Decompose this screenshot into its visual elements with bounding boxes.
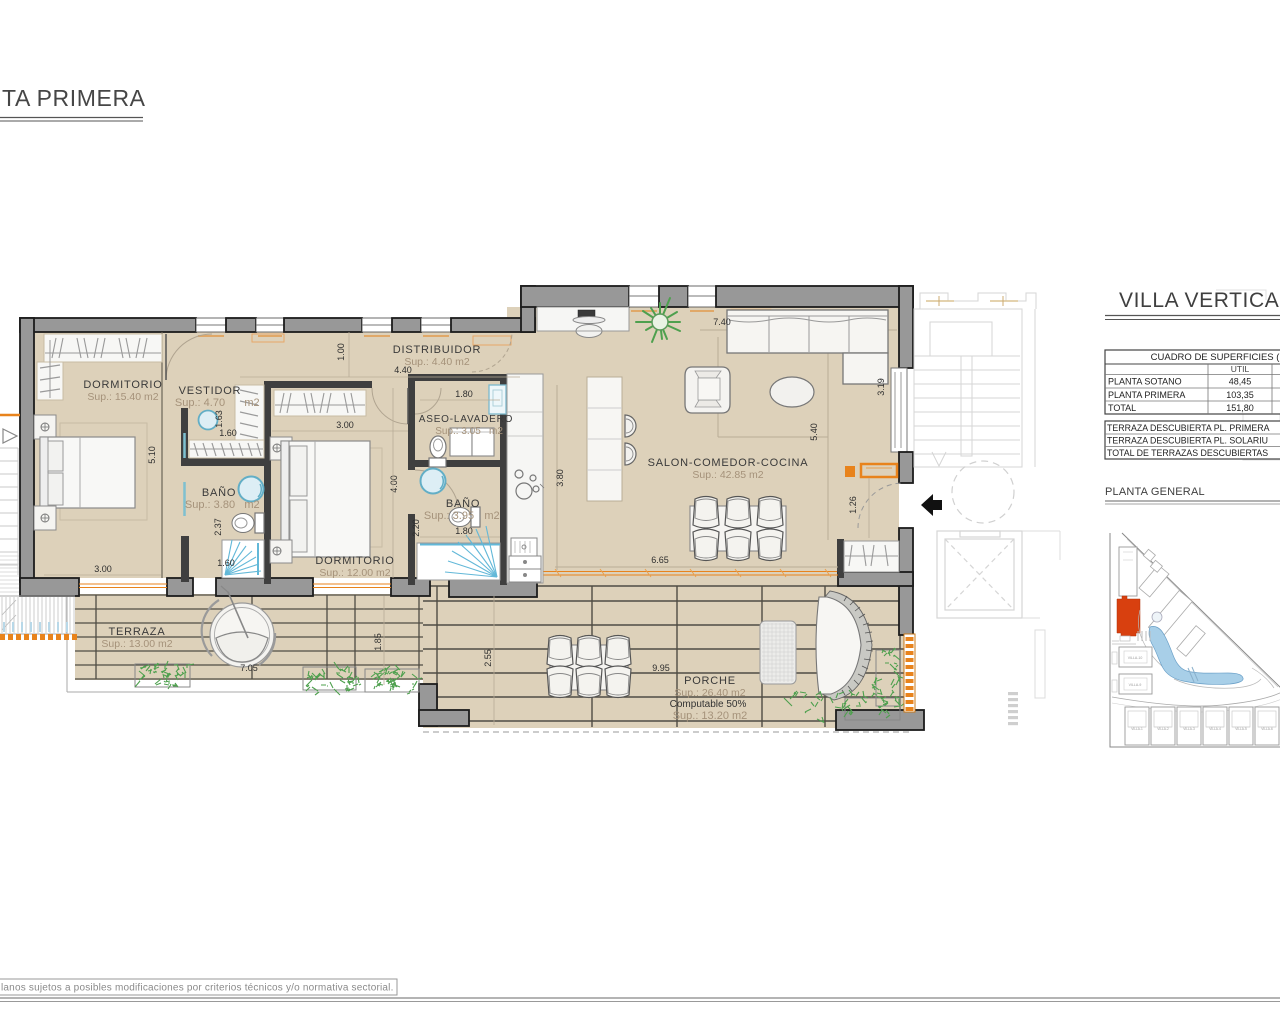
svg-text:VESTIDOR: VESTIDOR — [179, 385, 242, 397]
svg-text:PLANTA SOTANO: PLANTA SOTANO — [1108, 377, 1182, 387]
svg-text:ASEO-LAVADERO: ASEO-LAVADERO — [419, 414, 514, 425]
svg-text:lanos sujetos a posibles modif: lanos sujetos a posibles modificaciones … — [1, 983, 394, 994]
svg-text:Sup.: 13.00 m2: Sup.: 13.00 m2 — [101, 638, 172, 650]
svg-text:TOTAL DE TERRAZAS DESCUBIERTAS: TOTAL DE TERRAZAS DESCUBIERTAS — [1107, 448, 1268, 458]
svg-text:TOTAL: TOTAL — [1108, 403, 1136, 413]
svg-text:9.95: 9.95 — [652, 663, 670, 673]
svg-text:2.37: 2.37 — [213, 518, 223, 536]
svg-text:3.00: 3.00 — [94, 564, 112, 574]
svg-text:3.00: 3.00 — [336, 420, 354, 430]
svg-text:VILLA VERTICA: VILLA VERTICA — [1119, 289, 1279, 312]
svg-text:1.60: 1.60 — [217, 558, 235, 568]
svg-text:7.05: 7.05 — [240, 663, 258, 673]
svg-text:VILLA-2: VILLA-2 — [1157, 727, 1169, 731]
svg-text:VILLA-6: VILLA-6 — [1261, 727, 1273, 731]
svg-text:48,45: 48,45 — [1229, 377, 1252, 387]
svg-text:7.40: 7.40 — [713, 317, 731, 327]
svg-text:5.10: 5.10 — [147, 446, 157, 464]
svg-text:m2: m2 — [489, 426, 503, 437]
svg-text:PLANTA GENERAL: PLANTA GENERAL — [1105, 486, 1205, 498]
svg-text:VILLA-3: VILLA-3 — [1183, 727, 1195, 731]
svg-text:5.40: 5.40 — [809, 423, 819, 441]
svg-text:Sup.: 3.80: Sup.: 3.80 — [185, 499, 235, 511]
svg-text:Computable 50%: Computable 50% — [670, 699, 747, 710]
svg-text:VILLA-4: VILLA-4 — [1209, 727, 1221, 731]
svg-text:VILLA-5: VILLA-5 — [1235, 727, 1247, 731]
svg-text:VILLA-9: VILLA-9 — [1129, 683, 1142, 687]
svg-text:m2: m2 — [484, 510, 499, 522]
svg-text:Sup.: 4.70: Sup.: 4.70 — [175, 397, 225, 409]
svg-text:2.20: 2.20 — [411, 519, 421, 537]
svg-text:Sup.: 3.05: Sup.: 3.05 — [435, 426, 481, 437]
svg-text:CUADRO DE SUPERFICIES (m: CUADRO DE SUPERFICIES (m — [1151, 352, 1280, 363]
svg-text:VILLA-1: VILLA-1 — [1131, 727, 1143, 731]
svg-text:2.55: 2.55 — [483, 649, 493, 667]
svg-text:1.00: 1.00 — [336, 343, 346, 361]
svg-text:m2: m2 — [244, 499, 259, 511]
svg-text:Sup.: 26.40 m2: Sup.: 26.40 m2 — [674, 687, 745, 699]
svg-text:1.80: 1.80 — [455, 389, 473, 399]
svg-text:3.80: 3.80 — [555, 469, 565, 487]
svg-text:Sup.: 3.95: Sup.: 3.95 — [424, 510, 474, 522]
svg-text:SALON-COMEDOR-COCINA: SALON-COMEDOR-COCINA — [648, 457, 809, 469]
svg-text:4.00: 4.00 — [389, 475, 399, 493]
svg-text:PLANTA PRIMERA: PLANTA PRIMERA — [1108, 390, 1185, 400]
svg-text:6.65: 6.65 — [651, 555, 669, 565]
svg-text:1.60: 1.60 — [219, 428, 237, 438]
svg-text:1.26: 1.26 — [848, 496, 858, 514]
svg-text:Sup.: 12.00 m2: Sup.: 12.00 m2 — [319, 567, 390, 579]
svg-text:UTIL: UTIL — [1231, 364, 1250, 374]
svg-text:DORMITORIO: DORMITORIO — [315, 555, 394, 567]
svg-text:1.63: 1.63 — [214, 410, 224, 428]
svg-text:1.80: 1.80 — [455, 526, 473, 536]
svg-text:3.19: 3.19 — [876, 378, 886, 396]
svg-text:VILLA-10: VILLA-10 — [1128, 656, 1143, 660]
svg-text:1.85: 1.85 — [373, 633, 383, 651]
svg-text:TA PRIMERA: TA PRIMERA — [2, 85, 146, 111]
svg-text:BAÑO: BAÑO — [446, 497, 480, 510]
svg-text:TERRAZA DESCUBIERTA PL. PRIMER: TERRAZA DESCUBIERTA PL. PRIMERA — [1107, 423, 1270, 433]
svg-text:PORCHE: PORCHE — [684, 675, 736, 687]
svg-text:Sup.: 42.85 m2: Sup.: 42.85 m2 — [692, 469, 763, 481]
svg-text:151,80: 151,80 — [1226, 403, 1254, 413]
svg-text:m2: m2 — [244, 397, 259, 409]
svg-text:103,35: 103,35 — [1226, 390, 1254, 400]
svg-text:Sup.: 4.40 m2: Sup.: 4.40 m2 — [404, 356, 470, 368]
svg-text:Sup.: 13.20 m2: Sup.: 13.20 m2 — [673, 710, 748, 722]
svg-text:TERRAZA DESCUBIERTA PL. SOLARI: TERRAZA DESCUBIERTA PL. SOLARIU — [1107, 436, 1268, 446]
svg-text:DORMITORIO: DORMITORIO — [83, 379, 162, 391]
svg-text:Sup.: 15.40 m2: Sup.: 15.40 m2 — [87, 391, 158, 403]
svg-text:BAÑO: BAÑO — [202, 486, 236, 499]
svg-text:TERRAZA: TERRAZA — [109, 626, 166, 638]
svg-text:DISTRIBUIDOR: DISTRIBUIDOR — [393, 344, 481, 356]
